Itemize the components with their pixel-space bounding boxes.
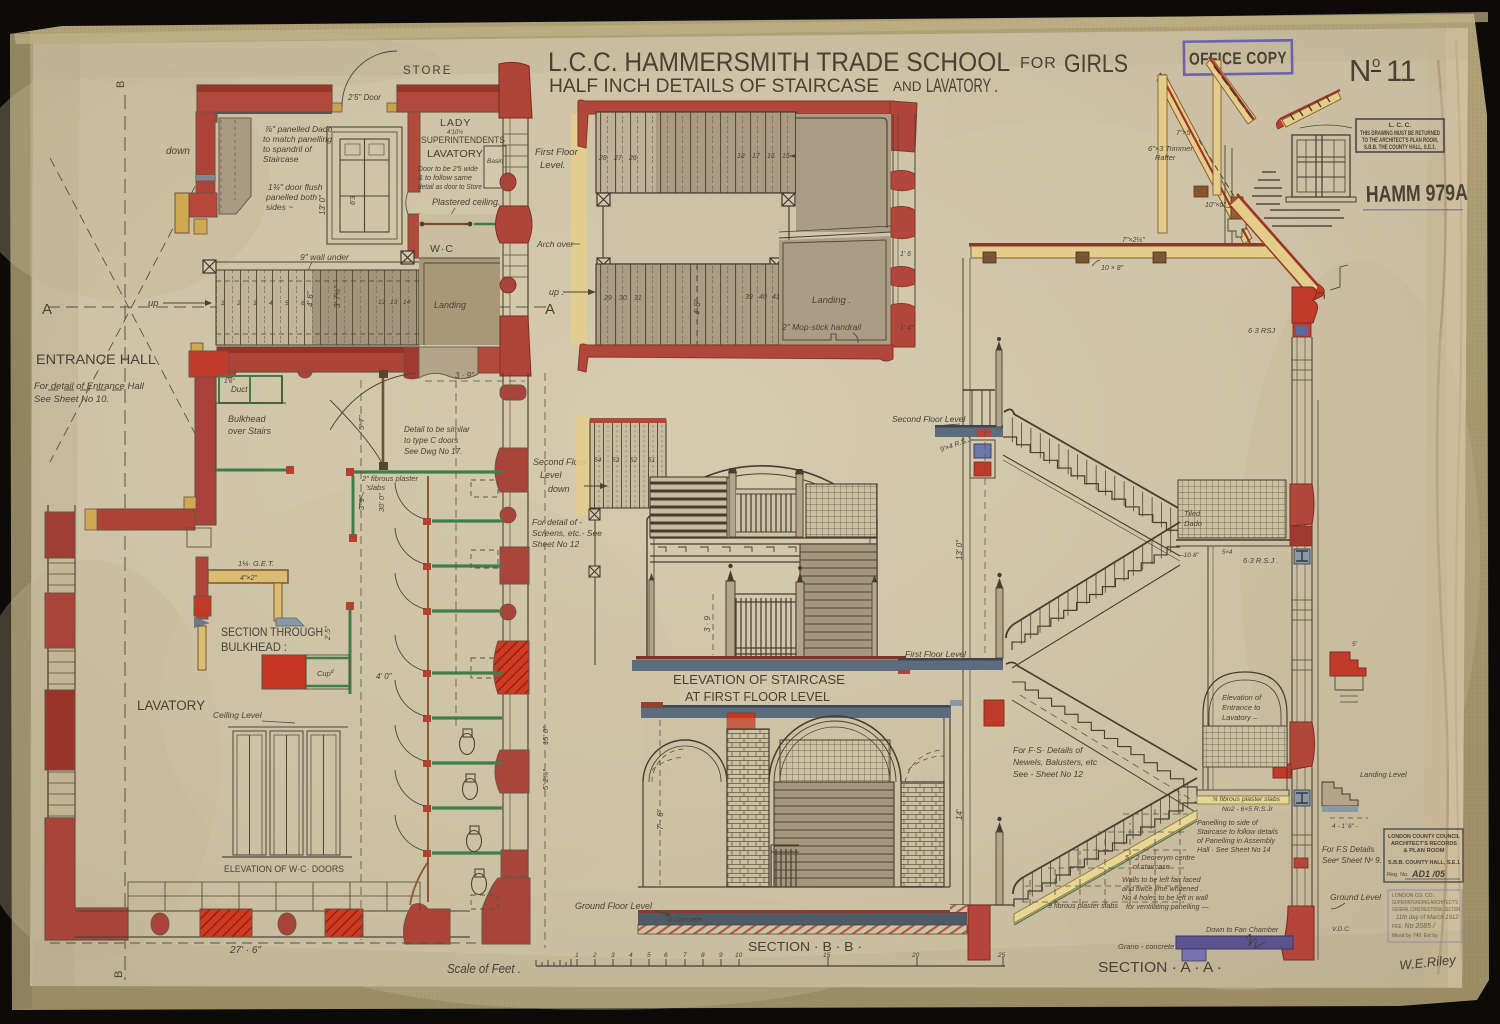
svg-text:V.D.C.: V.D.C. — [1332, 926, 1351, 933]
svg-text:10 × 8": 10 × 8" — [1101, 265, 1124, 272]
svg-text:1' 6: 1' 6 — [900, 251, 911, 258]
svg-text:Down to Fan Chamber: Down to Fan Chamber — [1206, 925, 1279, 934]
svg-text:6: 6 — [664, 952, 668, 959]
svg-text:SUPERINTENDING ARCHITECT'S: SUPERINTENDING ARCHITECT'S — [1392, 900, 1459, 906]
svg-text:5': 5' — [1352, 641, 1358, 648]
svg-text:SECTION THROUGH: SECTION THROUGH — [221, 625, 323, 639]
svg-text:Scale of Feet .: Scale of Feet . — [447, 961, 521, 976]
svg-text:GIRLS: GIRLS — [1064, 50, 1128, 78]
svg-text:LAVATORY: LAVATORY — [137, 698, 205, 713]
svg-text:Lavatory –: Lavatory – — [1222, 713, 1258, 722]
svg-text:4' 6": 4' 6" — [306, 290, 315, 307]
svg-text:27' · 6": 27' · 6" — [229, 945, 261, 956]
svg-text:Ground Level: Ground Level — [1330, 892, 1382, 902]
svg-text:Staircase: Staircase — [263, 154, 299, 164]
svg-text:up: up — [148, 298, 159, 309]
svg-text:W·C: W·C — [430, 243, 454, 255]
svg-text:A: A — [545, 301, 555, 318]
svg-text:S.B.B. THE COUNTY HALL, S.E.1.: S.B.B. THE COUNTY HALL, S.E.1. — [1364, 145, 1436, 151]
svg-text:See Sheet No 10.: See Sheet No 10. — [34, 394, 109, 405]
svg-text:First Floor Level: First Floor Level — [905, 649, 967, 659]
svg-text:For F.S Details: For F.S Details — [1322, 845, 1374, 854]
svg-text:AT FIRST FLOOR LEVEL: AT FIRST FLOOR LEVEL — [685, 689, 830, 704]
svg-text:Landing .: Landing . — [812, 295, 851, 306]
svg-text:to match panelling: to match panelling — [263, 134, 332, 144]
svg-text:Reg. No.: Reg. No. — [1387, 872, 1409, 878]
svg-text:5 - 2 Deorerym centre: 5 - 2 Deorerym centre — [1125, 853, 1195, 862]
svg-text:sides ~: sides ~ — [266, 202, 293, 212]
svg-text:40: 40 — [759, 294, 767, 301]
svg-text:4"×2": 4"×2" — [240, 575, 257, 582]
svg-text:9" wall under: 9" wall under — [300, 252, 350, 262]
svg-text:Grano - concrete: Grano - concrete — [1118, 942, 1174, 951]
svg-text:LONDON COUNTY COUNCIL: LONDON COUNTY COUNCIL — [1388, 834, 1460, 840]
svg-text:See Dwg No 17.: See Dwg No 17. — [404, 447, 462, 456]
svg-text:4' 6": 4' 6" — [693, 298, 702, 315]
svg-text:and twice lime whitened .: and twice lime whitened . — [1122, 884, 1202, 893]
svg-text:29: 29 — [603, 295, 612, 302]
svg-text:SUPERINTENDENTS: SUPERINTENDENTS — [421, 135, 505, 145]
svg-text:Plastered ceiling.: Plastered ceiling. — [432, 197, 501, 207]
svg-text:1¾" door flush: 1¾" door flush — [268, 182, 323, 192]
svg-text:6: 6 — [301, 300, 305, 307]
svg-text:3: 3 — [611, 952, 615, 959]
svg-text:AND: AND — [893, 79, 922, 94]
svg-text:B: B — [113, 971, 125, 978]
svg-text:Entrance to: Entrance to — [1222, 703, 1260, 712]
svg-text:7: 7 — [683, 952, 687, 959]
svg-text:First Floor: First Floor — [535, 147, 579, 158]
svg-text:52: 52 — [630, 457, 638, 464]
svg-text:ARCHITECT'S RECORDS: ARCHITECT'S RECORDS — [1391, 841, 1457, 847]
svg-text:No2 - 6×5 R.S.Jr: No2 - 6×5 R.S.Jr — [1222, 806, 1274, 813]
svg-text:FOR: FOR — [1020, 55, 1057, 72]
svg-text:HALF INCH DETAILS OF STAIRCASE: HALF INCH DETAILS OF STAIRCASE — [549, 75, 879, 97]
svg-text:53: 53 — [612, 457, 620, 464]
svg-text:51: 51 — [648, 457, 656, 464]
svg-text:5' 7": 5' 7" — [357, 415, 366, 430]
svg-text:4' 0": 4' 0" — [376, 672, 393, 681]
svg-text:31: 31 — [634, 295, 642, 302]
svg-text:B: B — [115, 81, 127, 88]
svg-text:10: 10 — [735, 952, 743, 959]
svg-text:A: A — [42, 301, 52, 318]
svg-text:down: down — [548, 484, 570, 494]
svg-text:L. C. C.: L. C. C. — [1389, 122, 1412, 129]
svg-text:3: 3 — [253, 300, 257, 307]
svg-text:6·3 RSJ: 6·3 RSJ — [1248, 326, 1275, 335]
svg-text:–10·8": –10·8" — [1179, 552, 1200, 559]
svg-text:ENTRANCE HALL: ENTRANCE HALL — [36, 351, 156, 367]
svg-text:'slabs: 'slabs — [366, 483, 385, 492]
svg-text:LAVATORY .: LAVATORY . — [926, 75, 998, 97]
svg-text:25: 25 — [997, 952, 1006, 959]
svg-text:7"×5: 7"×5 — [1176, 130, 1190, 137]
svg-text:54: 54 — [594, 457, 602, 464]
svg-text:26: 26 — [628, 155, 637, 162]
svg-text:⅞" panelled Dado: ⅞" panelled Dado — [265, 124, 333, 134]
svg-text:20: 20 — [911, 952, 920, 959]
svg-text:For detail of Entrance Hall: For detail of Entrance Hall — [34, 381, 145, 392]
svg-text:for ventilating panelling —: for ventilating panelling — — [1126, 902, 1210, 911]
svg-text:LADY: LADY — [440, 117, 471, 129]
svg-text:12: 12 — [378, 299, 386, 306]
svg-text:& PLAN ROOM: & PLAN ROOM — [1403, 848, 1444, 854]
svg-text:18: 18 — [737, 153, 745, 160]
svg-text:5×4: 5×4 — [1222, 550, 1233, 556]
svg-text:TO THE ARCHITECT'S PLAN ROOM,: TO THE ARCHITECT'S PLAN ROOM, — [1362, 138, 1438, 144]
svg-text:1' 4": 1' 4" — [900, 325, 914, 332]
svg-text:6 Concrete: 6 Concrete — [668, 917, 702, 924]
svg-text:S.B.B. COUNTY HALL, S.E.1: S.B.B. COUNTY HALL, S.E.1 — [1388, 860, 1461, 866]
svg-text:30: 30 — [619, 295, 627, 302]
svg-text:41: 41 — [772, 294, 780, 301]
svg-text:7"×2½": 7"×2½" — [1122, 236, 1145, 244]
svg-text:See - Sheet No 12: See - Sheet No 12 — [1013, 769, 1083, 779]
svg-text:up .: up . — [549, 287, 564, 297]
svg-text:15' 0": 15' 0" — [541, 726, 550, 745]
svg-text:Level: Level — [540, 470, 563, 480]
svg-text:of staircase: of staircase — [1133, 862, 1170, 871]
svg-text:down: down — [166, 146, 190, 157]
svg-text:15: 15 — [782, 153, 790, 160]
svg-text:Basin: Basin — [487, 158, 504, 165]
svg-text:2'5" Door: 2'5" Door — [347, 93, 381, 102]
svg-text:14': 14' — [955, 809, 964, 820]
svg-text:Detail to be similar: Detail to be similar — [404, 425, 470, 434]
svg-text:11: 11 — [1386, 55, 1415, 88]
svg-text:detail as door to Store: detail as door to Store — [418, 184, 482, 191]
svg-text:3 · 9": 3 · 9" — [455, 371, 475, 380]
svg-text:L.C.C. HAMMERSMITH TRADE SCHOO: L.C.C. HAMMERSMITH TRADE SCHOOL — [548, 47, 1010, 77]
svg-text:13: 13 — [390, 299, 398, 306]
svg-text:Dado: Dado — [1184, 519, 1202, 528]
svg-text:39: 39 — [745, 294, 753, 301]
svg-text:5: 5 — [647, 952, 651, 959]
svg-text:16: 16 — [767, 153, 775, 160]
svg-text:30' 0": 30' 0" — [377, 493, 386, 512]
svg-text:15: 15 — [823, 952, 831, 959]
svg-text:to spandril of: to spandril of — [263, 144, 313, 154]
svg-text:6"×3 Trimmer: 6"×3 Trimmer — [1148, 144, 1193, 153]
svg-text:11th day of March 1912: 11th day of March 1912 — [1396, 915, 1459, 921]
svg-text:Landing Level: Landing Level — [1360, 770, 1407, 779]
svg-text:Rafter: Rafter — [1155, 153, 1176, 162]
svg-text:4: 4 — [629, 952, 633, 959]
svg-text:5' 2⅞": 5' 2⅞" — [541, 769, 550, 790]
svg-text:3 · 9: 3 · 9 — [703, 615, 712, 632]
svg-text:4 - 1' 6" -: 4 - 1' 6" - — [1332, 823, 1359, 830]
svg-text:over Stairs: over Stairs — [228, 426, 272, 436]
svg-text:ELEVATION OF STAIRCASE: ELEVATION OF STAIRCASE — [673, 672, 845, 687]
svg-text:Duct .: Duct . — [231, 385, 252, 394]
svg-text:Landing: Landing — [434, 300, 466, 310]
svg-text:Elevation of: Elevation of — [1222, 693, 1262, 702]
svg-text:Ground Floor Level: Ground Floor Level — [575, 901, 653, 911]
svg-text:2" fibrous plaster: 2" fibrous plaster — [361, 474, 419, 483]
svg-text:Seee Sheet No 9.: Seee Sheet No 9. — [1322, 856, 1382, 865]
svg-text:Ceiling Level: Ceiling Level — [213, 710, 263, 720]
svg-text:Arch over: Arch over — [536, 239, 575, 249]
svg-text:GENERAL CONSTRUCTIONAL SECTION: GENERAL CONSTRUCTIONAL SECTION — [1392, 907, 1460, 913]
svg-text:17: 17 — [752, 153, 761, 160]
svg-text:Staircase to follow details: Staircase to follow details — [1197, 827, 1279, 836]
svg-text:Walls to be left fair fac: Walls to be left fair faced — [1122, 875, 1202, 884]
svg-text:2: 2 — [592, 952, 597, 959]
svg-text:1: 1 — [575, 952, 579, 959]
svg-text:13' 0": 13' 0" — [955, 539, 964, 560]
svg-text:AD1 /05: AD1 /05 — [1411, 869, 1446, 879]
svg-text:Hall · See Sheet No 14: Hall · See Sheet No 14 — [1197, 845, 1271, 854]
svg-text:6·3 R.S.J .: 6·3 R.S.J . — [1243, 556, 1278, 565]
svg-text:SECTION · B · B ·: SECTION · B · B · — [748, 939, 862, 954]
svg-text:panelled both: panelled both — [265, 192, 317, 202]
svg-text:o: o — [1372, 54, 1380, 71]
svg-text:Sheet No 12: Sheet No 12 — [532, 539, 580, 549]
svg-text:Panelling to side of: Panelling to side of — [1197, 818, 1259, 827]
svg-text:6'3: 6'3 — [350, 196, 357, 205]
svg-text:STORE: STORE — [403, 65, 452, 77]
svg-text:14: 14 — [403, 299, 411, 306]
svg-text:HAMM 979A: HAMM 979A — [1366, 179, 1469, 207]
svg-text:to type C doors: to type C doors — [404, 436, 458, 445]
svg-text:9 fibrous plaster slabs: 9 fibrous plaster slabs — [1048, 901, 1118, 910]
svg-text:9: 9 — [719, 952, 723, 959]
svg-text:Newels, Balusters, etc: Newels, Balusters, etc — [1013, 757, 1098, 767]
svg-text:5: 5 — [285, 300, 289, 307]
svg-text:Level.: Level. — [540, 160, 565, 171]
svg-text:FEE: No 2085 /: FEE: No 2085 / — [1392, 923, 1436, 930]
svg-text:1'6": 1'6" — [224, 378, 235, 385]
svg-text:No 4 holes to be left in w: No 4 holes to be left in wall — [1122, 893, 1208, 902]
svg-text:8: 8 — [701, 952, 705, 959]
svg-text:Tiled: Tiled — [1184, 509, 1201, 518]
svg-text:¾ fibrous plaster slabs: ¾ fibrous plaster slabs — [1212, 796, 1281, 803]
svg-text:LAVATORY: LAVATORY — [427, 149, 483, 160]
svg-text:13' 0": 13' 0" — [318, 194, 327, 215]
svg-text:Mead by 749. Est by: Mead by 749. Est by — [1392, 933, 1438, 939]
svg-text:2'.5": 2'.5" — [325, 626, 332, 641]
svg-text:SECTION · A · A ·: SECTION · A · A · — [1098, 960, 1222, 976]
svg-text:BULKHEAD :: BULKHEAD : — [221, 640, 287, 654]
svg-text:27: 27 — [613, 155, 623, 162]
svg-text:1: 1 — [221, 300, 225, 307]
svg-text:LONDON CO. CO.: LONDON CO. CO. — [1392, 893, 1434, 899]
svg-text:Bulkhead: Bulkhead — [228, 414, 267, 424]
svg-text:Door to be 2'5 wide: Door to be 2'5 wide — [418, 166, 478, 173]
svg-text:THIS DRAWING MUST BE RETURNED: THIS DRAWING MUST BE RETURNED — [1360, 131, 1440, 137]
svg-text:ELEVATION OF W·C· DOORS: ELEVATION OF W·C· DOORS — [224, 864, 344, 875]
svg-text:28: 28 — [598, 155, 607, 162]
svg-text:7' · 6": 7' · 6" — [656, 808, 665, 830]
svg-text:For detail of -: For detail of - — [532, 517, 582, 527]
svg-text:of Panelling in Assembly: of Panelling in Assembly — [1197, 836, 1275, 845]
svg-text:N: N — [1349, 53, 1371, 88]
svg-text:1¼· G.E.T.: 1¼· G.E.T. — [238, 559, 274, 568]
svg-text:2" Mop-stick handrail: 2" Mop-stick handrail — [781, 322, 862, 332]
svg-text:& to follow same: & to follow same — [418, 175, 472, 182]
svg-text:OFFICE COPY: OFFICE COPY — [1189, 48, 1287, 68]
svg-text:Second Floor Level: Second Floor Level — [892, 414, 966, 424]
svg-text:3' 7½": 3' 7½" — [333, 285, 342, 308]
svg-text:2: 2 — [236, 300, 241, 307]
svg-text:Screens, etc.- See: Screens, etc.- See — [532, 528, 602, 538]
svg-text:For F·S· Details of: For F·S· Details of — [1013, 745, 1084, 755]
svg-text:4: 4 — [269, 300, 273, 307]
